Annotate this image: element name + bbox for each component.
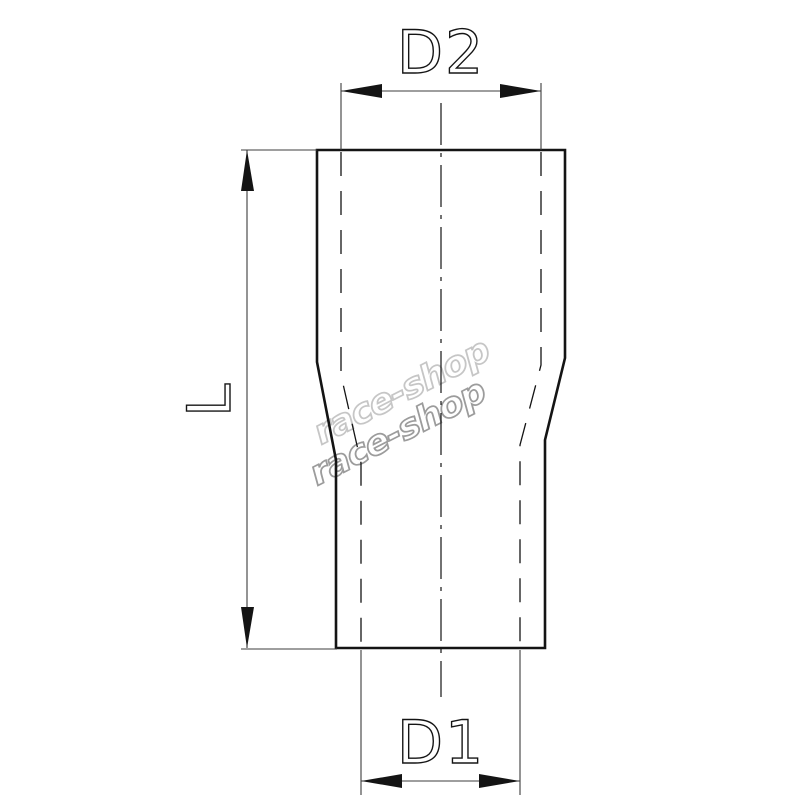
d2-arrowhead-left [341,84,382,98]
watermark: race-shop race-shop [303,330,497,494]
l-label: L [175,382,245,417]
d2-arrowhead-right [500,84,541,98]
inner-wall-right-hidden-line [520,152,541,648]
l-arrowhead-top [241,150,254,191]
l-arrowhead-bottom [241,607,254,648]
d1-label: D1 [397,708,485,778]
technical-drawing: race-shop race-shop D2 L [0,0,800,800]
d2-label: D2 [397,18,485,88]
coupler-drawing-svg: race-shop race-shop D2 L [0,0,800,800]
dimension-l: L [175,150,337,649]
